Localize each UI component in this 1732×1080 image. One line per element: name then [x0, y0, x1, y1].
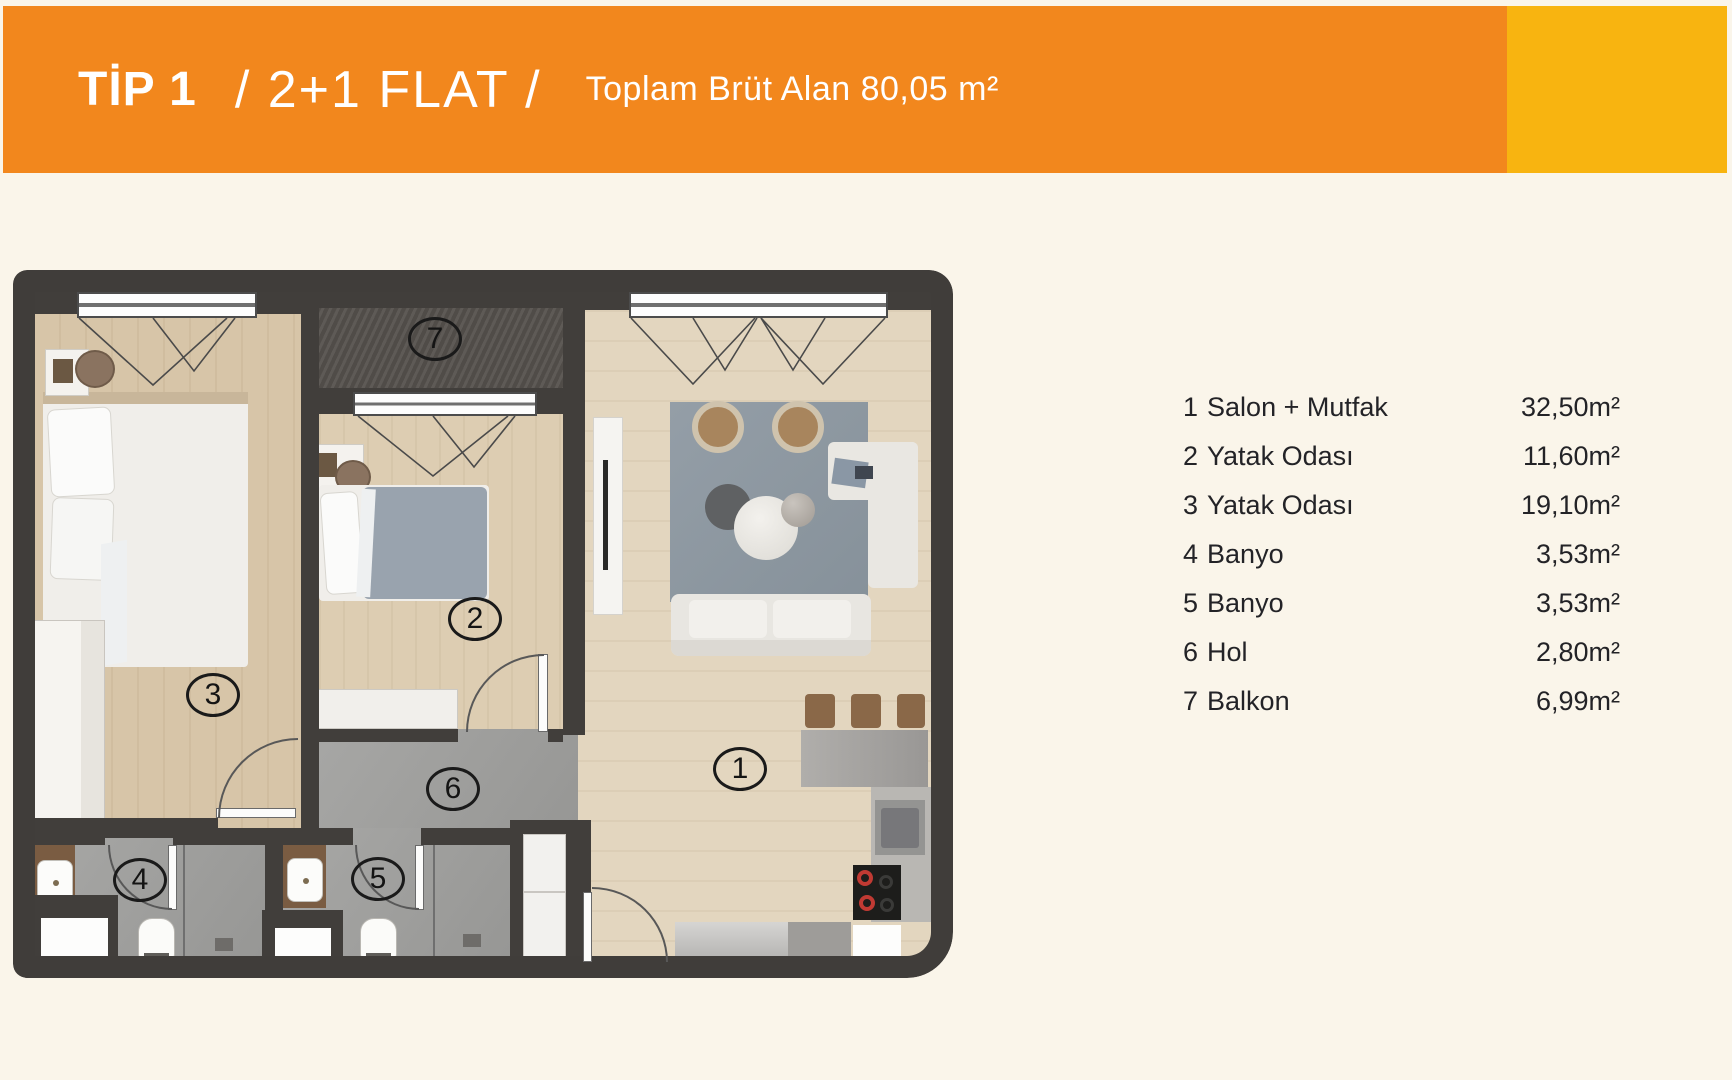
legend-row-bedroom-2: 2Yatak Odası 11,60m² [1183, 442, 1620, 470]
legend-number: 6 [1183, 637, 1198, 667]
room-marker-bedroom-3: 3 [186, 673, 240, 717]
legend-number: 2 [1183, 441, 1198, 471]
room-marker-balcony: 7 [408, 317, 462, 361]
legend-row-bathroom-4: 4Banyo 3,53m² [1183, 540, 1620, 568]
legend-room-name: Yatak Odası [1207, 441, 1354, 471]
room-marker-number: 4 [132, 863, 149, 897]
door-leaf-entrance [583, 892, 592, 962]
gross-area-label: Toplam Brüt Alan 80,05 m² [586, 70, 999, 109]
flat-type-label: / 2+1 FLAT / [235, 60, 542, 120]
room-marker-salon: 1 [713, 747, 767, 791]
legend-room-name: Balkon [1207, 686, 1290, 716]
room-marker-number: 1 [732, 752, 749, 786]
legend-row-bathroom-5: 5Banyo 3,53m² [1183, 589, 1620, 617]
room-marker-bathroom-4: 4 [113, 858, 167, 902]
legend-room-name: Banyo [1207, 588, 1284, 618]
room-marker-number: 3 [205, 678, 222, 712]
legend-label: 2Yatak Odası [1183, 442, 1354, 470]
plan-type-title: TİP 1 [78, 62, 197, 117]
legend-room-name: Salon + Mutfak [1207, 392, 1388, 422]
header-bar: TİP 1 / 2+1 FLAT / Toplam Brüt Alan 80,0… [3, 6, 1507, 173]
legend-label: 7Balkon [1183, 687, 1290, 715]
floor-plan: 1 2 3 4 5 6 7 [13, 270, 953, 978]
legend-label: 1Salon + Mutfak [1183, 393, 1388, 421]
legend-row-bedroom-3: 3Yatak Odası 19,10m² [1183, 491, 1620, 519]
room-marker-number: 6 [445, 772, 462, 806]
legend-area-value: 6,99m² [1536, 687, 1620, 715]
room-marker-number: 2 [467, 602, 484, 636]
legend-row-hall: 6Hol 2,80m² [1183, 638, 1620, 666]
legend-number: 3 [1183, 490, 1198, 520]
legend-label: 4Banyo [1183, 540, 1284, 568]
room-marker-number: 7 [427, 322, 444, 356]
legend-room-name: Hol [1207, 637, 1248, 667]
header-accent-block [1507, 6, 1727, 173]
room-marker-bedroom-2: 2 [448, 597, 502, 641]
room-marker-hall: 6 [426, 767, 480, 811]
legend-number: 1 [1183, 392, 1198, 422]
room-marker-number: 5 [370, 862, 387, 896]
legend-area-value: 3,53m² [1536, 540, 1620, 568]
legend-area-value: 19,10m² [1521, 491, 1620, 519]
room-legend: 1Salon + Mutfak 32,50m² 2Yatak Odası 11,… [1183, 393, 1620, 715]
legend-label: 3Yatak Odası [1183, 491, 1354, 519]
legend-number: 7 [1183, 686, 1198, 716]
legend-label: 6Hol [1183, 638, 1248, 666]
legend-area-value: 11,60m² [1523, 442, 1620, 470]
legend-area-value: 32,50m² [1521, 393, 1620, 421]
legend-number: 4 [1183, 539, 1198, 569]
legend-area-value: 2,80m² [1536, 638, 1620, 666]
legend-row-balcony: 7Balkon 6,99m² [1183, 687, 1620, 715]
legend-room-name: Yatak Odası [1207, 490, 1354, 520]
legend-label: 5Banyo [1183, 589, 1284, 617]
legend-number: 5 [1183, 588, 1198, 618]
legend-area-value: 3,53m² [1536, 589, 1620, 617]
legend-room-name: Banyo [1207, 539, 1284, 569]
room-marker-bathroom-5: 5 [351, 857, 405, 901]
legend-row-salon: 1Salon + Mutfak 32,50m² [1183, 393, 1620, 421]
